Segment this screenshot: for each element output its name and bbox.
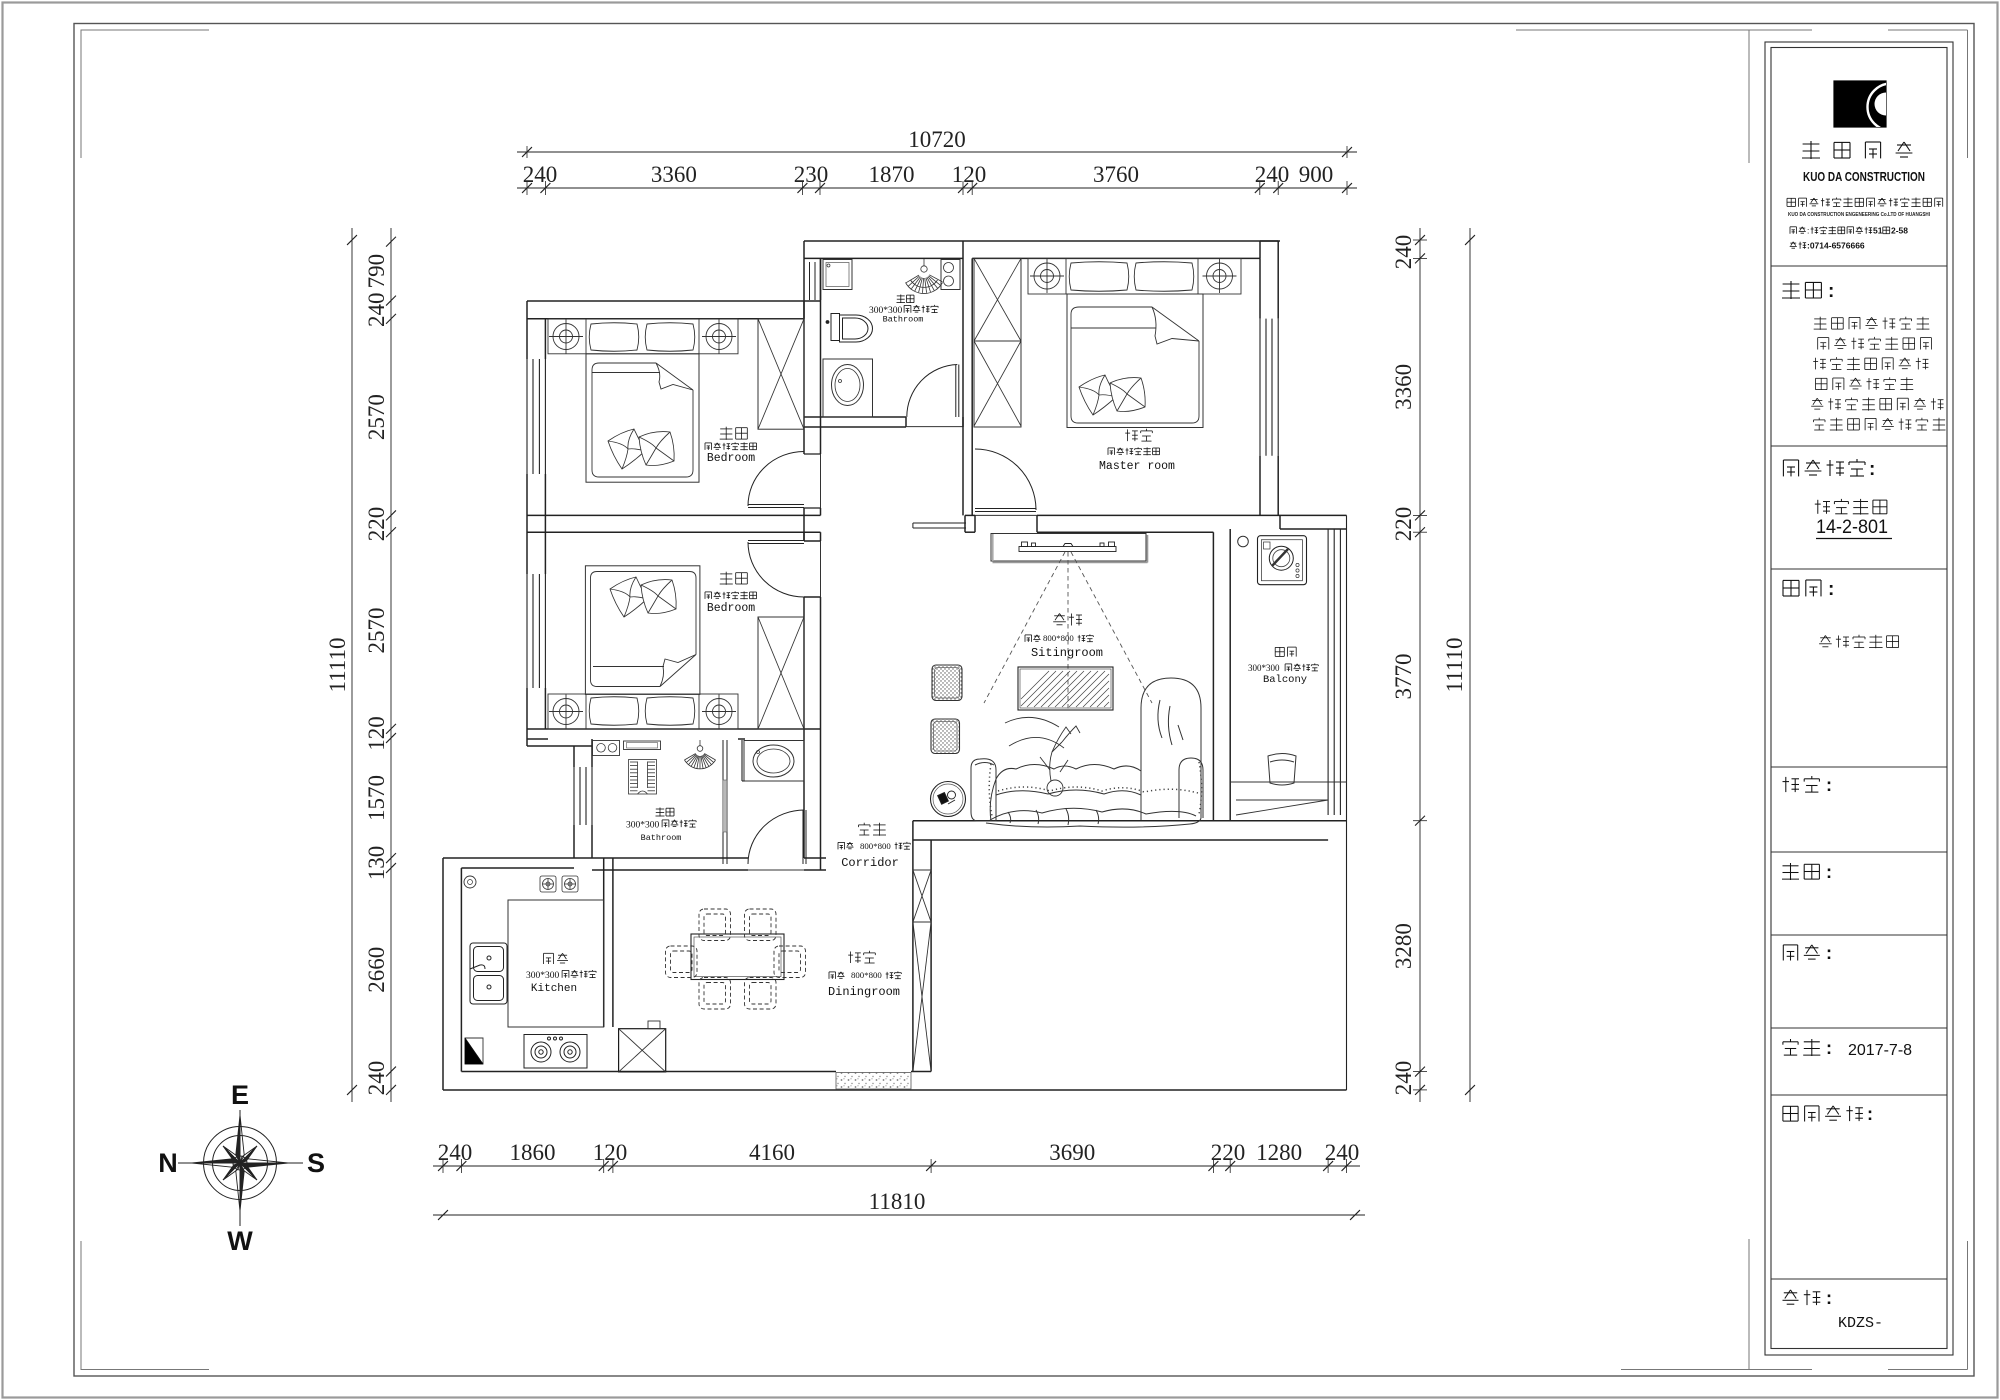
svg-text:800*800: 800*800 — [860, 841, 891, 851]
svg-text::: : — [1826, 1038, 1832, 1058]
svg-text:Bathroom: Bathroom — [883, 315, 924, 325]
svg-text:3690: 3690 — [1049, 1140, 1095, 1165]
svg-text:Sitingroom: Sitingroom — [1031, 646, 1103, 660]
svg-text:3360: 3360 — [1391, 364, 1416, 410]
svg-text:E: E — [231, 1080, 249, 1110]
svg-text:240: 240 — [1325, 1140, 1360, 1165]
svg-text:230: 230 — [794, 162, 829, 187]
svg-text:S: S — [307, 1148, 325, 1178]
svg-text::: : — [1828, 579, 1834, 600]
svg-text:11110: 11110 — [1442, 638, 1467, 693]
svg-text::: : — [1826, 775, 1832, 795]
svg-text:800*800: 800*800 — [851, 970, 882, 980]
svg-text:Kitchen: Kitchen — [531, 983, 577, 995]
svg-text:240: 240 — [364, 1061, 389, 1096]
svg-text:KUO DA CONSTRUCTION: KUO DA CONSTRUCTION — [1803, 169, 1925, 184]
svg-text:3760: 3760 — [1093, 162, 1139, 187]
svg-text::: : — [1867, 1104, 1873, 1124]
svg-text::: : — [1869, 459, 1875, 480]
svg-text:11810: 11810 — [869, 1189, 926, 1214]
svg-text:130: 130 — [364, 846, 389, 881]
svg-text::: : — [1826, 1288, 1832, 1308]
svg-text:220: 220 — [364, 507, 389, 542]
svg-text:KUO DA CONSTRUCTION ENGENEERIN: KUO DA CONSTRUCTION ENGENEERING Co.LTD O… — [1788, 212, 1930, 218]
svg-text:4160: 4160 — [749, 1140, 795, 1165]
svg-text:240: 240 — [364, 292, 389, 327]
svg-text:2570: 2570 — [364, 608, 389, 654]
svg-text:11110: 11110 — [325, 638, 350, 693]
svg-text:1860: 1860 — [510, 1140, 556, 1165]
svg-text:14-2-801: 14-2-801 — [1816, 517, 1888, 538]
svg-text:KDZS-: KDZS- — [1838, 1315, 1883, 1332]
svg-text:2660: 2660 — [364, 947, 389, 993]
svg-text:120: 120 — [593, 1140, 628, 1165]
svg-text:N: N — [158, 1148, 178, 1178]
svg-text:240: 240 — [1391, 235, 1416, 270]
svg-text:240: 240 — [523, 162, 558, 187]
svg-text:800*800: 800*800 — [1043, 633, 1074, 643]
svg-text:Balcony: Balcony — [1263, 674, 1307, 686]
svg-text::: : — [1826, 943, 1832, 963]
svg-text:Bedroom: Bedroom — [707, 452, 755, 465]
svg-text::: : — [1807, 226, 1809, 236]
svg-text::0714-6576666: :0714-6576666 — [1807, 241, 1865, 251]
svg-text:240: 240 — [1391, 1061, 1416, 1096]
svg-text:3770: 3770 — [1391, 653, 1416, 699]
svg-text:1570: 1570 — [364, 775, 389, 821]
svg-text:Diningroom: Diningroom — [828, 985, 900, 999]
svg-text:2-58: 2-58 — [1891, 226, 1908, 236]
svg-text:120: 120 — [952, 162, 987, 187]
svg-text:220: 220 — [1391, 507, 1416, 542]
svg-text:300*300: 300*300 — [526, 971, 560, 981]
svg-text:300*300: 300*300 — [626, 821, 660, 831]
svg-text:Master room: Master room — [1099, 460, 1175, 473]
svg-text:240: 240 — [438, 1140, 473, 1165]
svg-text:1280: 1280 — [1256, 1140, 1302, 1165]
svg-text:300*300: 300*300 — [1248, 663, 1280, 673]
svg-text:120: 120 — [364, 716, 389, 751]
svg-text:51: 51 — [1873, 226, 1883, 236]
svg-text:240: 240 — [1255, 162, 1290, 187]
svg-text:10720: 10720 — [908, 127, 966, 152]
svg-text:Corridor: Corridor — [841, 856, 899, 870]
svg-text:3280: 3280 — [1391, 923, 1416, 969]
svg-text::: : — [1826, 862, 1832, 882]
svg-text:Bathroom: Bathroom — [641, 833, 682, 843]
svg-text:1870: 1870 — [869, 162, 915, 187]
svg-text:790: 790 — [364, 254, 389, 289]
svg-text:2570: 2570 — [364, 394, 389, 440]
svg-text::: : — [1828, 281, 1834, 302]
svg-text:2017-7-8: 2017-7-8 — [1848, 1042, 1912, 1059]
svg-text:900: 900 — [1299, 162, 1334, 187]
svg-text:3360: 3360 — [651, 162, 697, 187]
svg-text:Bedroom: Bedroom — [707, 602, 755, 615]
svg-text:W: W — [227, 1226, 253, 1256]
svg-text:220: 220 — [1211, 1140, 1246, 1165]
